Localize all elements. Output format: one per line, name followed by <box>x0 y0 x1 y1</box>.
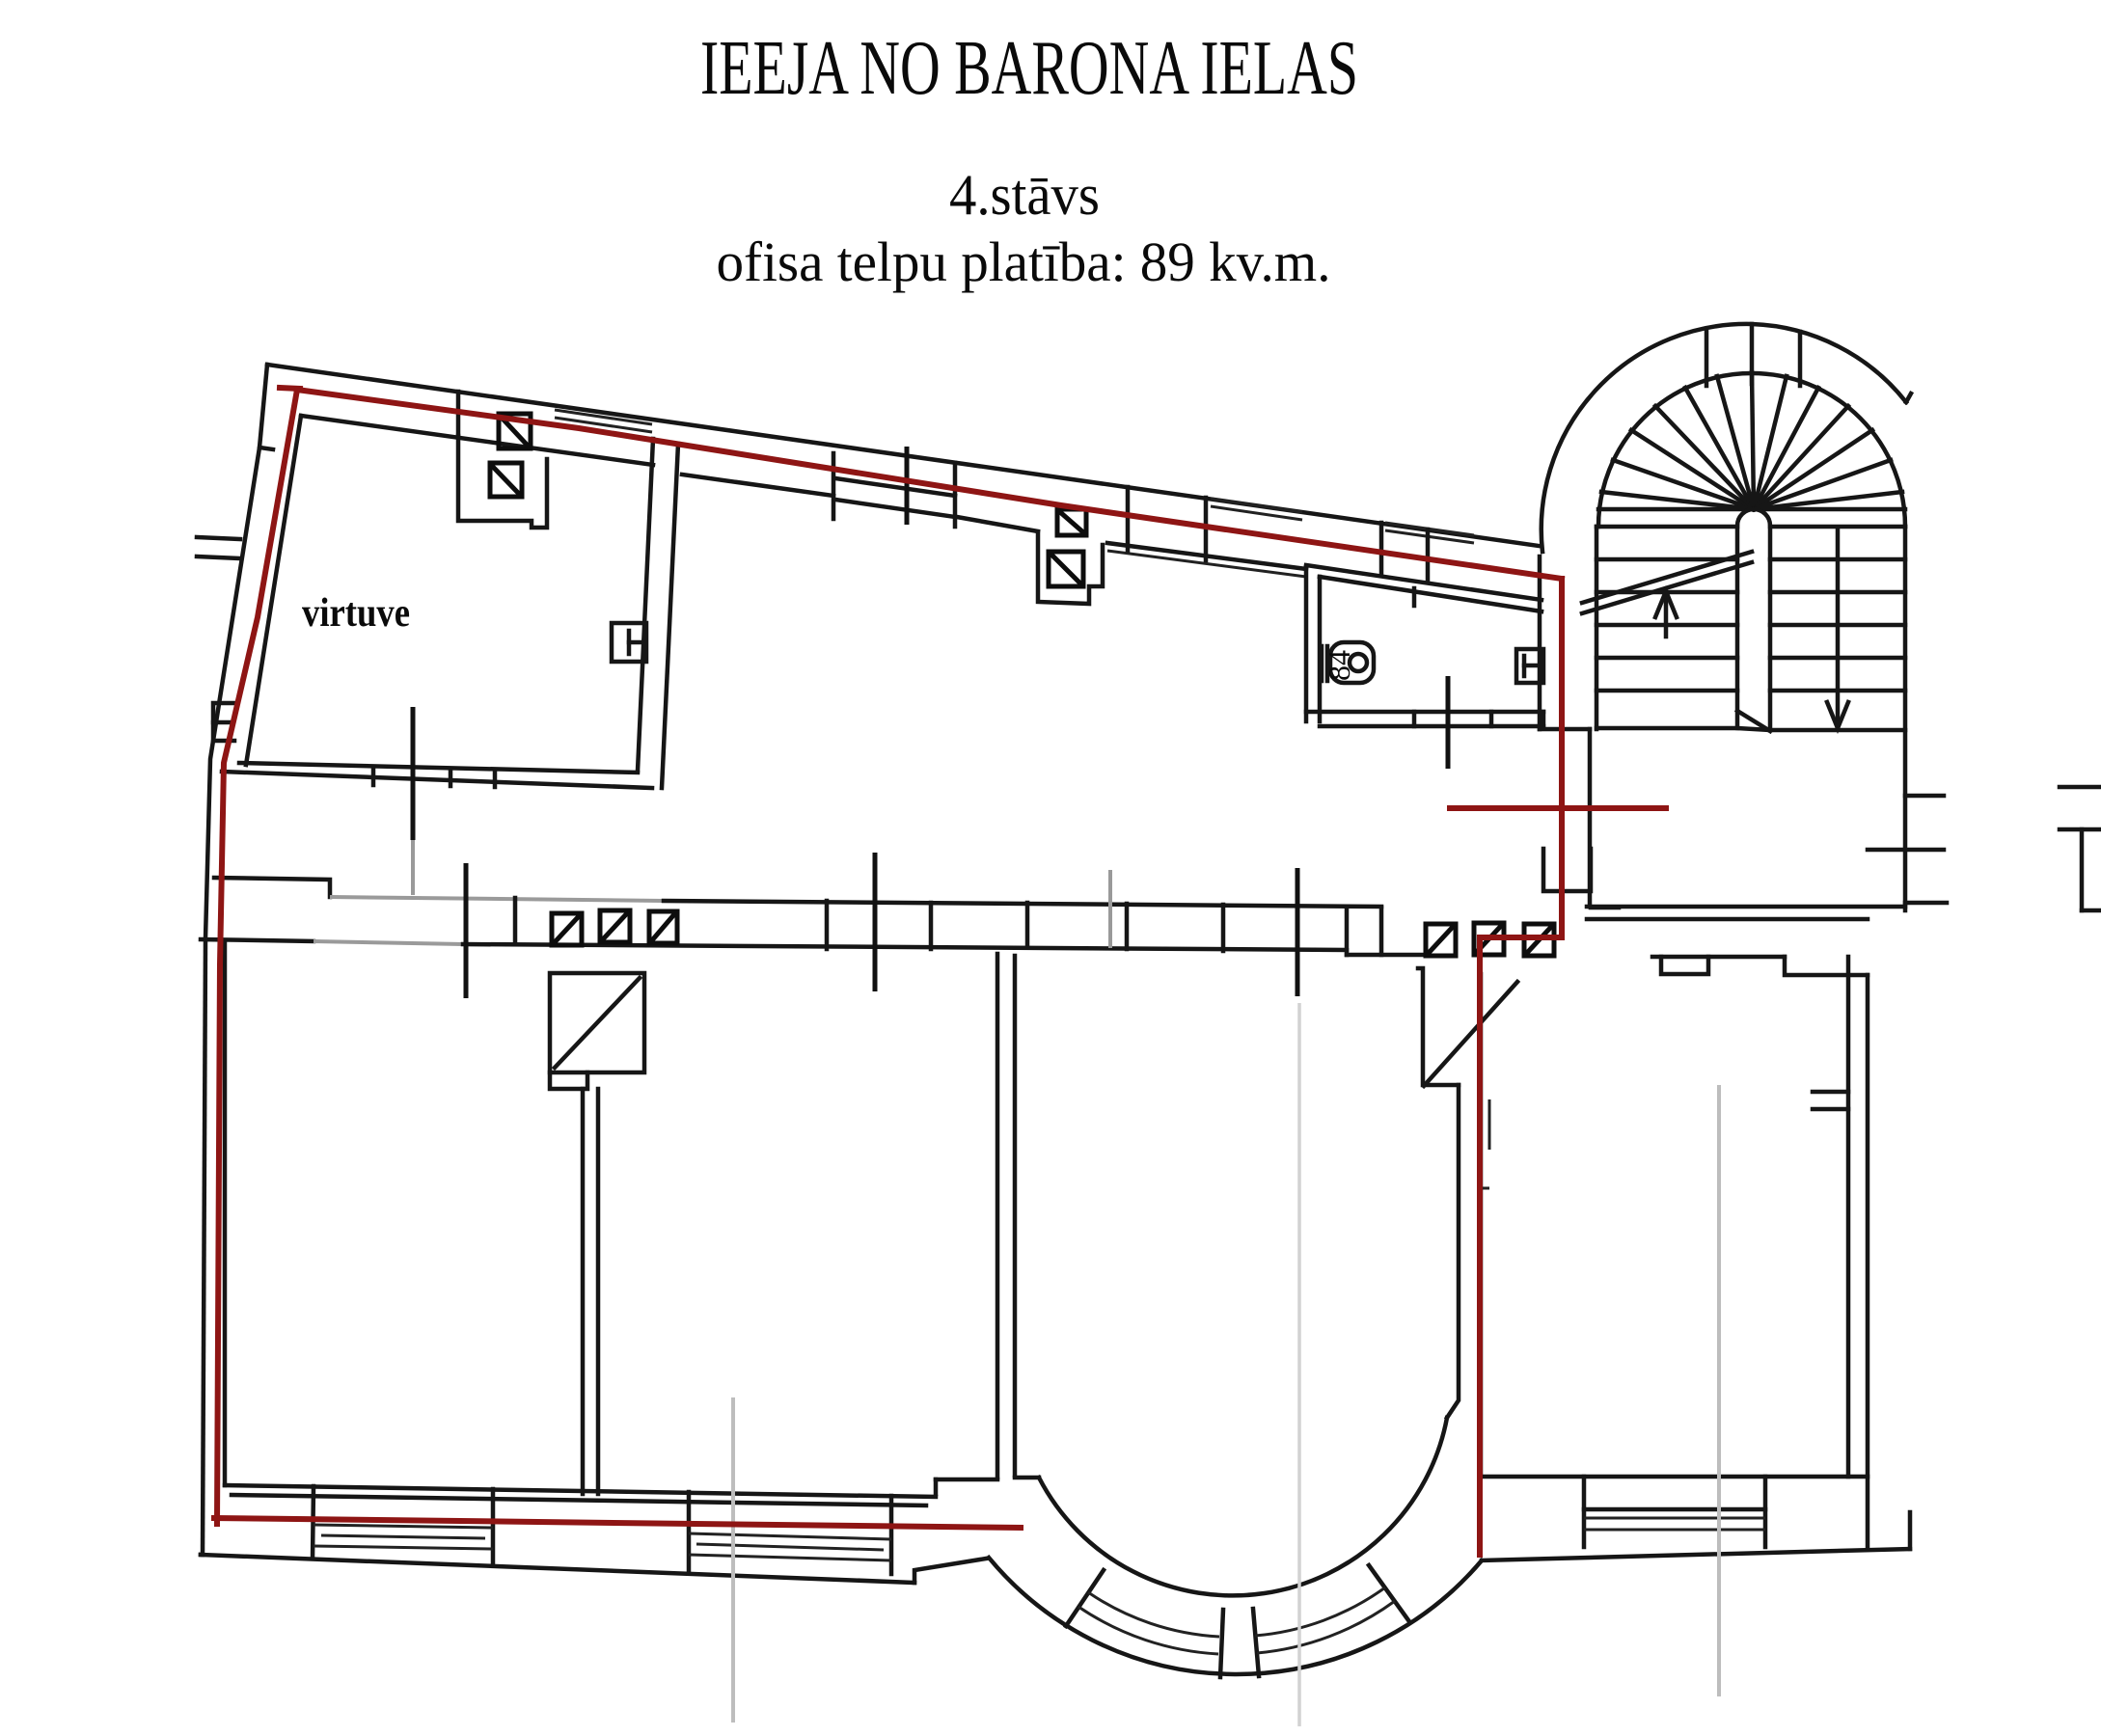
svg-text:virtuve: virtuve <box>302 591 410 636</box>
svg-text:84: 84 <box>1322 650 1356 681</box>
svg-text:IEEJA NO BARONA IELAS: IEEJA NO BARONA IELAS <box>700 26 1358 111</box>
svg-text:4.stāvs: 4.stāvs <box>949 163 1100 227</box>
svg-text:ofisa telpu platība: 89 kv.m.: ofisa telpu platība: 89 kv.m. <box>717 231 1331 293</box>
